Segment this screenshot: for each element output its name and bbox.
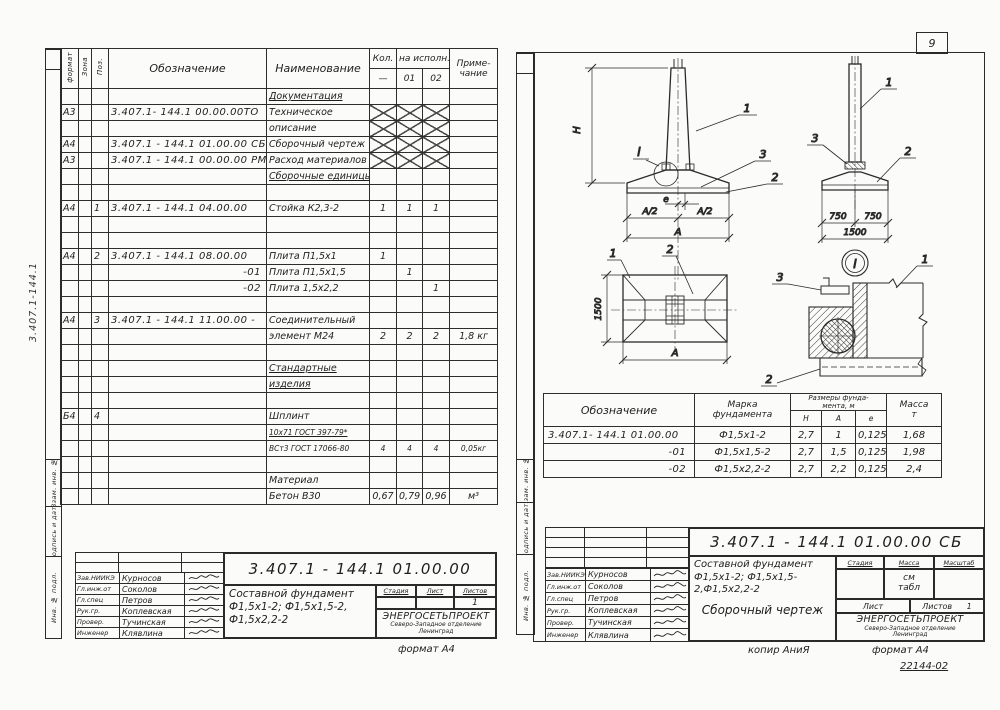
- pos-cell: [92, 137, 109, 153]
- qty-01-cell: 1: [397, 265, 423, 281]
- callout-post: 1: [610, 247, 617, 260]
- spec-row: А3 3.407.1- 144.1 00.00.00ТО Техническое: [61, 105, 498, 121]
- qty-base-cell: [370, 153, 397, 169]
- spec-row: Материал: [61, 473, 498, 489]
- format-cell: [61, 377, 79, 393]
- name-cell: ВСт3 ГОСТ 17066-80: [267, 441, 370, 457]
- signatory-role: Провер.: [76, 617, 120, 627]
- stage-value: [376, 597, 416, 609]
- right-format-note: формат А4: [872, 645, 929, 656]
- zone-cell: [79, 265, 92, 281]
- dim-a2-right: А/2: [697, 207, 713, 217]
- name-cell: Расход материалов: [267, 153, 370, 169]
- pos-cell: [92, 217, 109, 233]
- zone-cell: [79, 489, 92, 505]
- designation-cell: [109, 425, 267, 441]
- designation-cell: 3.407.1- 144.1 01.00.00: [544, 427, 695, 444]
- spec-row: 10х71 ГОСТ 397-79*: [61, 425, 498, 441]
- spec-row: -02 Плита 1,5х2,2 1: [61, 281, 498, 297]
- name-cell: элемент М24: [267, 329, 370, 345]
- callout-collar: 3: [777, 271, 784, 284]
- qty-02-cell: [423, 185, 450, 201]
- name-cell: Стойка К2,3-2: [267, 201, 370, 217]
- pos-cell: [92, 361, 109, 377]
- stage-label: Стадия: [836, 556, 884, 569]
- qty-base-cell: [370, 313, 397, 329]
- designation-cell: -01: [109, 265, 267, 281]
- sheet-label: Лист: [416, 585, 454, 597]
- spec-row: Бетон В30 0,67 0,79 0,96 м³: [61, 489, 498, 505]
- name-cell: Стандартные: [267, 361, 370, 377]
- callout-plate: 2: [667, 243, 674, 256]
- format-cell: А3: [61, 153, 79, 169]
- signatory-name: Петров: [120, 595, 185, 605]
- qty-base-cell: [370, 361, 397, 377]
- signature-table: Зав.НИИКЭ Курносов Гл.инж.от Соколов Гл.…: [546, 528, 689, 641]
- designation-cell: [109, 409, 267, 425]
- callout-plate: 2: [766, 373, 773, 386]
- signatory-row: Провер. Тучинская: [76, 616, 223, 627]
- qty-01-cell: [397, 425, 423, 441]
- qty-base-cell: [370, 185, 397, 201]
- mark-cell: Ф1,5х1-2: [695, 427, 791, 444]
- signatory-name: Курносов: [586, 569, 651, 580]
- name-cell: Техническое: [267, 105, 370, 121]
- signature-table: Зав.НИИКЭ Курносов Гл.инж.от Соколов Гл.…: [76, 553, 224, 638]
- stage-value: [836, 569, 884, 599]
- sheet-value: [416, 597, 454, 609]
- designation-cell: 3.407.1 - 144.1 04.00.00: [109, 201, 267, 217]
- pos-cell: [92, 441, 109, 457]
- h-cell: 2,7: [791, 444, 822, 461]
- note-cell: [450, 201, 498, 217]
- spec-row: А3 3.407.1 - 144.1 00.00.00 РМ Расход ма…: [61, 153, 498, 169]
- a-cell: 2,2: [822, 461, 856, 478]
- format-cell: Б4: [61, 409, 79, 425]
- scale-value: [934, 569, 984, 599]
- side-stamp-cell: [517, 53, 534, 74]
- signatory-role: Инженер: [546, 629, 586, 640]
- format-cell: [61, 297, 79, 313]
- format-cell: [61, 345, 79, 361]
- zone-cell: [79, 137, 92, 153]
- spec-row: ВСт3 ГОСТ 17066-80 4 4 4 0,05кг: [61, 441, 498, 457]
- qty-02-cell: [423, 153, 450, 169]
- qty-01-cell: [397, 137, 423, 153]
- spec-row: [61, 297, 498, 313]
- qty-02-cell: [423, 473, 450, 489]
- podpis-label: Подпись и дата: [522, 502, 530, 555]
- signature-scribble: [185, 584, 223, 594]
- spec-row: элемент М24 2 2 2 1,8 кг: [61, 329, 498, 345]
- dim-1500-label: 1500: [844, 228, 867, 238]
- qty-02-cell: [423, 361, 450, 377]
- format-cell: [61, 425, 79, 441]
- qty-02-cell: [423, 425, 450, 441]
- zone-cell: [79, 281, 92, 297]
- pos-cell: [92, 297, 109, 313]
- pos-cell: [92, 377, 109, 393]
- qty-base-cell: [370, 345, 397, 361]
- vzam-label: Взам. инв. №: [50, 459, 58, 507]
- designation-cell: [109, 329, 267, 345]
- pos-cell: [92, 473, 109, 489]
- signatory-role: Гл.спец: [76, 595, 120, 605]
- signature-scribble: [185, 595, 223, 605]
- zone-cell: [79, 105, 92, 121]
- zone-cell: [79, 441, 92, 457]
- format-cell: [61, 329, 79, 345]
- qty-02-cell: [423, 393, 450, 409]
- header-dims: Размеры фунда- мента, м: [791, 394, 887, 411]
- side-stamp-cell: [46, 69, 61, 90]
- qty-base-cell: [370, 281, 397, 297]
- organization: ЭНЕРГОСЕТЬПРОЕКТ Северо-Западное отделен…: [376, 609, 496, 638]
- signatory-name: Клявлина: [586, 629, 651, 640]
- signature-scribble: [651, 617, 688, 628]
- qty-base-cell: 0,67: [370, 489, 397, 505]
- a-cell: 1: [822, 427, 856, 444]
- pos-cell: [92, 233, 109, 249]
- qty-base-cell: [370, 457, 397, 473]
- spec-row: Сборочные единицы: [61, 169, 498, 185]
- qty-02-cell: [423, 313, 450, 329]
- side-stamp-inv: Инв. № подл.: [517, 554, 534, 635]
- sheets-value: 1: [454, 597, 496, 609]
- qty-02-cell: [423, 265, 450, 281]
- e-cell: 0,125: [856, 444, 887, 461]
- note-cell: [450, 105, 498, 121]
- callout-plate: 2: [905, 145, 912, 158]
- qty-base-cell: [370, 473, 397, 489]
- qty-base-cell: 4: [370, 441, 397, 457]
- qty-02-cell: [423, 457, 450, 473]
- zone-cell: [79, 457, 92, 473]
- format-cell: [61, 361, 79, 377]
- vzam-label: Взам. инв. №: [522, 459, 530, 503]
- designation-cell: [109, 473, 267, 489]
- left-title-block: Зав.НИИКЭ Курносов Гл.инж.от Соколов Гл.…: [75, 552, 497, 639]
- signatory-row: Гл.инж.от Соколов: [76, 583, 223, 594]
- header-mark: Марка фундамента: [695, 394, 791, 427]
- pos-cell: 4: [92, 409, 109, 425]
- signature-scribble: [651, 581, 688, 592]
- pos-cell: [92, 281, 109, 297]
- pos-cell: [92, 345, 109, 361]
- format-cell: А4: [61, 201, 79, 217]
- pos-cell: [92, 121, 109, 137]
- designation-cell: 3.407.1 - 144.1 01.00.00 СБ: [109, 137, 267, 153]
- format-cell: [61, 457, 79, 473]
- zone-cell: [79, 217, 92, 233]
- note-cell: [450, 249, 498, 265]
- qty-01-cell: 1: [397, 201, 423, 217]
- pos-cell: [92, 169, 109, 185]
- designation-cell: [109, 489, 267, 505]
- name-cell: Сборочные единицы: [267, 169, 370, 185]
- e-cell: 0,125: [856, 427, 887, 444]
- signatory-name: Тучинская: [120, 617, 185, 627]
- designation-cell: [109, 233, 267, 249]
- qty-01-cell: [397, 121, 423, 137]
- signatory-role: Гл.инж.от: [76, 584, 120, 594]
- zone-cell: [79, 297, 92, 313]
- callout-collar: 3: [760, 148, 767, 161]
- name-cell: Сборочный чертеж: [267, 137, 370, 153]
- note-cell: м³: [450, 489, 498, 505]
- qty-01-cell: [397, 153, 423, 169]
- header-per-version: на исполн.: [397, 49, 450, 69]
- signatory-role: Инженер: [76, 628, 120, 638]
- name-cell: [267, 233, 370, 249]
- qty-01-cell: [397, 457, 423, 473]
- signatory-role: Зав.НИИКЭ: [76, 573, 120, 583]
- qty-02-cell: [423, 137, 450, 153]
- page-number: 9: [929, 37, 936, 50]
- side-stamp-cell: [46, 49, 61, 70]
- format-cell: [61, 265, 79, 281]
- pos-cell: [92, 185, 109, 201]
- qty-02-cell: [423, 105, 450, 121]
- side-stamp-podpis: Подпись и дата: [517, 502, 534, 555]
- note-cell: [450, 473, 498, 489]
- name-cell: Плита П1,5х1: [267, 249, 370, 265]
- inv-label: Инв. № подл.: [522, 570, 530, 621]
- designation-cell: [109, 185, 267, 201]
- format-cell: [61, 233, 79, 249]
- designation-cell: [109, 361, 267, 377]
- qty-01-cell: [397, 377, 423, 393]
- signature-empty-rows: [76, 553, 223, 572]
- designation-cell: [109, 345, 267, 361]
- detail-mark-circled: I: [853, 257, 857, 271]
- signatory-row: Инженер Клявлина: [76, 627, 223, 638]
- designation-cell: 3.407.1 - 144.1 11.00.00 -: [109, 313, 267, 329]
- dim-750-right: 750: [864, 212, 881, 222]
- note-cell: [450, 361, 498, 377]
- qty-01-cell: [397, 409, 423, 425]
- mass-label: Масса: [884, 556, 934, 569]
- pos-cell: [92, 393, 109, 409]
- format-cell: А3: [61, 105, 79, 121]
- format-cell: [61, 217, 79, 233]
- qty-base-cell: [370, 297, 397, 313]
- right-title-block: Зав.НИИКЭ Курносов Гл.инж.от Соколов Гл.…: [545, 527, 985, 642]
- pos-cell: [92, 457, 109, 473]
- qty-02-cell: 1: [423, 201, 450, 217]
- organization: ЭНЕРГОСЕТЬПРОЕКТ Северо-Западное отделен…: [836, 613, 984, 641]
- header-e: е: [856, 411, 887, 427]
- sheets-label: Листов: [454, 585, 496, 597]
- signatory-role: Гл.инж.от: [546, 581, 586, 592]
- mark-row: -01 Ф1,5х1,5-2 2,7 1,5 0,125 1,98: [544, 444, 942, 461]
- signatory-role: Рук.гр.: [76, 606, 120, 616]
- zone-cell: [79, 89, 92, 105]
- mass-value: см табл: [884, 569, 934, 599]
- left-format-note: формат А4: [398, 644, 455, 655]
- foundation-marks-table: Обозначение Марка фундамента Размеры фун…: [543, 393, 942, 478]
- qty-01-cell: [397, 361, 423, 377]
- mark-row: -02 Ф1,5х2,2-2 2,7 2,2 0,125 2,4: [544, 461, 942, 478]
- zone-cell: [79, 121, 92, 137]
- zone-cell: [79, 425, 92, 441]
- format-cell: [61, 185, 79, 201]
- header-qty: Кол.: [370, 49, 397, 69]
- designation-cell: [109, 121, 267, 137]
- qty-02-cell: 2: [423, 329, 450, 345]
- note-cell: [450, 121, 498, 137]
- header-designation: Обозначение: [109, 49, 267, 89]
- mass-cell: 1,68: [887, 427, 942, 444]
- name-cell: Плита 1,5х2,2: [267, 281, 370, 297]
- note-cell: [450, 457, 498, 473]
- note-cell: [450, 281, 498, 297]
- header-name: Наименование: [267, 49, 370, 89]
- designation-cell: [109, 457, 267, 473]
- name-cell: [267, 297, 370, 313]
- pos-cell: [92, 329, 109, 345]
- signatory-name: Соколов: [120, 584, 185, 594]
- qty-base-cell: [370, 169, 397, 185]
- signatory-row: Гл.спец Петров: [76, 594, 223, 605]
- note-cell: [450, 409, 498, 425]
- inv-label: Инв. № подл.: [50, 572, 58, 623]
- qty-01-cell: [397, 217, 423, 233]
- zone-cell: [79, 329, 92, 345]
- h-cell: 2,7: [791, 427, 822, 444]
- signatory-name: Петров: [586, 593, 651, 604]
- plan-dim-1500: 1500: [594, 297, 604, 320]
- qty-base-cell: [370, 105, 397, 121]
- note-cell: 0,05кг: [450, 441, 498, 457]
- spec-row: А4 3.407.1 - 144.1 01.00.00 СБ Сборочный…: [61, 137, 498, 153]
- header-mass: Масса т: [887, 394, 942, 427]
- signatory-row: Провер. Тучинская: [546, 616, 688, 628]
- zone-cell: [79, 409, 92, 425]
- qty-base-cell: [370, 121, 397, 137]
- qty-01-cell: [397, 169, 423, 185]
- specification-table: формат Зона Поз. Обозначение Наименовани…: [60, 48, 498, 505]
- name-cell: описание: [267, 121, 370, 137]
- signature-scribble: [651, 605, 688, 616]
- spec-row: изделия: [61, 377, 498, 393]
- format-cell: А4: [61, 313, 79, 329]
- name-cell: 10х71 ГОСТ 397-79*: [267, 425, 370, 441]
- note-cell: 1,8 кг: [450, 329, 498, 345]
- note-cell: [450, 297, 498, 313]
- mark-cell: Ф1,5х1,5-2: [695, 444, 791, 461]
- name-cell: Соединительный: [267, 313, 370, 329]
- e-cell: 0,125: [856, 461, 887, 478]
- copy-note: копир АниЯ: [748, 645, 810, 656]
- designation-cell: [109, 377, 267, 393]
- qty-base-cell: [370, 89, 397, 105]
- qty-02-cell: [423, 297, 450, 313]
- designation-cell: [109, 169, 267, 185]
- callout-post: 1: [922, 253, 929, 266]
- dim-a2-left: А/2: [642, 207, 658, 217]
- spec-row: А4 1 3.407.1 - 144.1 04.00.00 Стойка К2,…: [61, 201, 498, 217]
- spec-row: Документация: [61, 89, 498, 105]
- plan-dim-a: А: [671, 348, 679, 359]
- qty-01-cell: [397, 281, 423, 297]
- mass-cell: 1,98: [887, 444, 942, 461]
- drawing-title: Составной фундамент Ф1,5х1-2; Ф1,5х1,5-2…: [689, 556, 836, 641]
- signatory-name: Коплевская: [586, 605, 651, 616]
- name-cell: [267, 457, 370, 473]
- pos-cell: [92, 153, 109, 169]
- detail-ref-label: I: [637, 145, 641, 159]
- format-cell: [61, 281, 79, 297]
- side-stamp-inv: Инв. № подл.: [46, 556, 61, 638]
- drawing-title: Составной фундамент Ф1,5х1-2; Ф1,5х1,5-2…: [224, 585, 376, 638]
- signatory-row: Зав.НИИКЭ Курносов: [76, 572, 223, 583]
- qty-01-cell: [397, 473, 423, 489]
- format-cell: [61, 441, 79, 457]
- name-cell: [267, 217, 370, 233]
- doc-code-note: 22144-02: [900, 661, 948, 672]
- pos-cell: [92, 265, 109, 281]
- qty-02-cell: 0,96: [423, 489, 450, 505]
- callout-post: 1: [744, 102, 751, 115]
- pos-cell: 3: [92, 313, 109, 329]
- note-cell: [450, 233, 498, 249]
- name-cell: [267, 345, 370, 361]
- margin-inventory-code: 3.407.1-144.1: [28, 232, 39, 342]
- signatory-role: Рук.гр.: [546, 605, 586, 616]
- dim-a-label: А: [674, 227, 682, 238]
- zone-cell: [79, 361, 92, 377]
- designation-cell: [109, 393, 267, 409]
- signatory-row: Инженер Клявлина: [546, 628, 688, 640]
- qty-base-cell: [370, 393, 397, 409]
- name-cell: Шплинт: [267, 409, 370, 425]
- zone-cell: [79, 185, 92, 201]
- qty-02-cell: [423, 409, 450, 425]
- qty-01-cell: [397, 185, 423, 201]
- signatory-name: Коплевская: [120, 606, 185, 616]
- format-cell: А4: [61, 249, 79, 265]
- qty-01-cell: [397, 393, 423, 409]
- header-format: формат: [61, 49, 79, 89]
- spec-row: Стандартные: [61, 361, 498, 377]
- pos-cell: [92, 489, 109, 505]
- spec-row: А4 3 3.407.1 - 144.1 11.00.00 - Соединит…: [61, 313, 498, 329]
- signatory-name: Клявлина: [120, 628, 185, 638]
- qty-01-cell: [397, 345, 423, 361]
- pos-cell: 2: [92, 249, 109, 265]
- signatory-role: Зав.НИИКЭ: [546, 569, 586, 580]
- qty-02-cell: 4: [423, 441, 450, 457]
- drawing-subtitle: Сборочный чертеж: [694, 603, 831, 618]
- side-stamp-podpis: Подпись и дата: [46, 506, 61, 557]
- dim-h-label: Н: [572, 126, 583, 134]
- designation-cell: [109, 89, 267, 105]
- qty-02-cell: 1: [423, 281, 450, 297]
- pos-cell: [92, 425, 109, 441]
- signature-scribble: [185, 606, 223, 616]
- spec-row: [61, 217, 498, 233]
- dim-750-left: 750: [829, 212, 846, 222]
- signature-scribble: [185, 617, 223, 627]
- format-cell: [61, 489, 79, 505]
- zone-cell: [79, 393, 92, 409]
- zone-cell: [79, 345, 92, 361]
- spec-row: [61, 393, 498, 409]
- signatory-row: Гл.спец Петров: [546, 592, 688, 604]
- signature-scribble: [651, 629, 688, 640]
- qty-01-cell: [397, 105, 423, 121]
